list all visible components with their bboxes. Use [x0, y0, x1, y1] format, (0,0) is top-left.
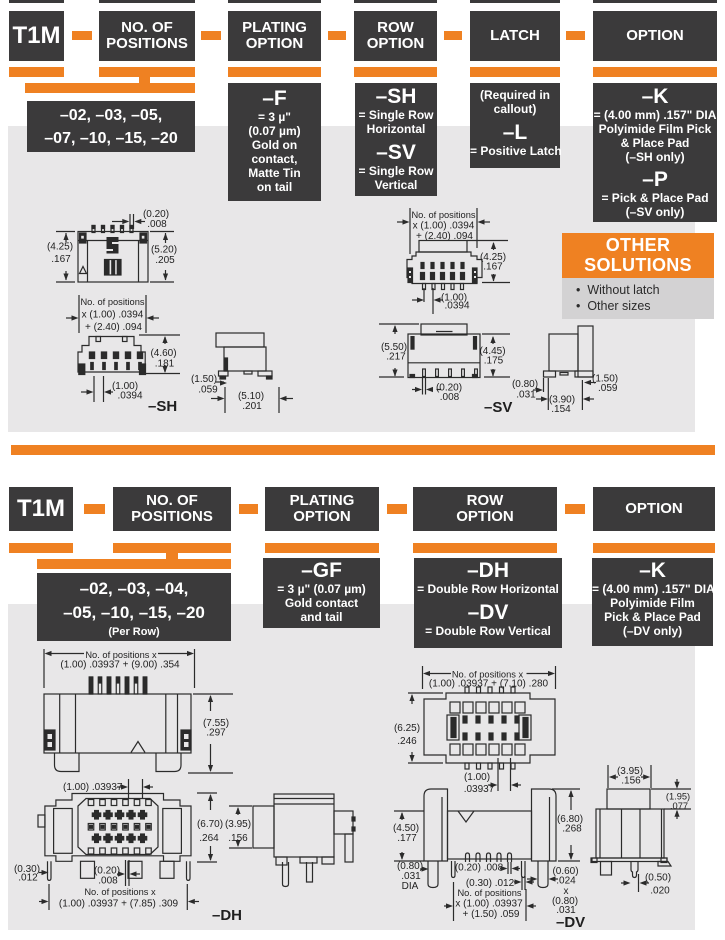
svg-text:–SH: –SH [148, 398, 177, 415]
svg-text:x (1.00) .0394: x (1.00) .0394 [413, 221, 475, 232]
svg-text:.008: .008 [147, 219, 167, 230]
svg-text:.264: .264 [199, 833, 219, 844]
svg-text:.008: .008 [440, 392, 460, 403]
svg-text:(0.80): (0.80) [512, 379, 538, 390]
svg-text:.020: .020 [650, 886, 670, 897]
svg-text:.059: .059 [198, 385, 218, 396]
svg-text:.03937: .03937 [464, 784, 495, 795]
svg-text:.0394: .0394 [117, 391, 142, 402]
svg-text:(1.00) .03937: (1.00) .03937 [63, 782, 123, 793]
svg-text:.0394: .0394 [444, 301, 469, 312]
svg-text:.008: .008 [98, 876, 118, 887]
svg-text:.175: .175 [484, 356, 504, 367]
svg-text:.059: .059 [598, 383, 618, 394]
svg-text:.024: .024 [556, 876, 576, 887]
svg-text:x (1.00) .03937: x (1.00) .03937 [455, 899, 523, 910]
svg-text:(1.50): (1.50) [191, 374, 217, 385]
svg-text:.217: .217 [386, 352, 406, 363]
svg-text:(1.00) .03937 + (9.00) .354: (1.00) .03937 + (9.00) .354 [60, 660, 180, 671]
svg-text:(5.20): (5.20) [151, 245, 177, 256]
svg-text:.154: .154 [551, 404, 571, 415]
svg-text:–DV: –DV [556, 914, 585, 931]
svg-text:No. of positions x: No. of positions x [85, 650, 157, 660]
svg-text:.012: .012 [18, 873, 38, 884]
svg-text:–SV: –SV [484, 399, 512, 416]
svg-text:(6.70): (6.70) [197, 819, 223, 830]
svg-text:.167: .167 [51, 254, 71, 265]
svg-text:.167: .167 [483, 262, 503, 273]
svg-text:+ (2.40) .094: + (2.40) .094 [85, 322, 142, 333]
svg-text:.201: .201 [242, 401, 262, 412]
svg-text:.177: .177 [397, 833, 417, 844]
svg-text:.246: .246 [397, 736, 417, 747]
svg-text:(0.50): (0.50) [645, 873, 671, 884]
svg-text:(6.25): (6.25) [394, 723, 420, 734]
svg-text:No. of positions x: No. of positions x [84, 887, 156, 897]
svg-text:(0.20) .008: (0.20) .008 [455, 863, 504, 874]
svg-text:.031: .031 [516, 390, 536, 401]
svg-text:.077: .077 [670, 801, 688, 811]
svg-text:x (1.00) .0394: x (1.00) .0394 [82, 310, 144, 321]
svg-text:+ (1.50) .059: + (1.50) .059 [463, 909, 520, 920]
svg-text:No. of positions: No. of positions [80, 297, 144, 307]
svg-text:(1.00) .03937 + (7.85) .309: (1.00) .03937 + (7.85) .309 [59, 899, 179, 910]
svg-text:.268: .268 [562, 824, 582, 835]
svg-text:(4.60): (4.60) [150, 348, 176, 359]
svg-text:(3.95): (3.95) [225, 819, 251, 830]
svg-text:No. of positions: No. of positions [457, 888, 521, 898]
svg-text:(1.00): (1.00) [464, 772, 490, 783]
svg-text:.297: .297 [206, 728, 226, 739]
svg-text:.205: .205 [155, 255, 175, 266]
svg-text:No. of positions: No. of positions [411, 210, 475, 220]
svg-text:(1.95): (1.95) [666, 792, 690, 802]
svg-text:(4.25): (4.25) [47, 242, 73, 253]
svg-text:–DH: –DH [212, 907, 242, 924]
svg-text:DIA: DIA [402, 881, 419, 892]
svg-text:.156: .156 [228, 833, 248, 844]
svg-text:.181: .181 [155, 359, 175, 370]
svg-text:(1.00) .03937 + (7.10) .280: (1.00) .03937 + (7.10) .280 [429, 679, 549, 690]
svg-text:.156: .156 [621, 776, 641, 787]
